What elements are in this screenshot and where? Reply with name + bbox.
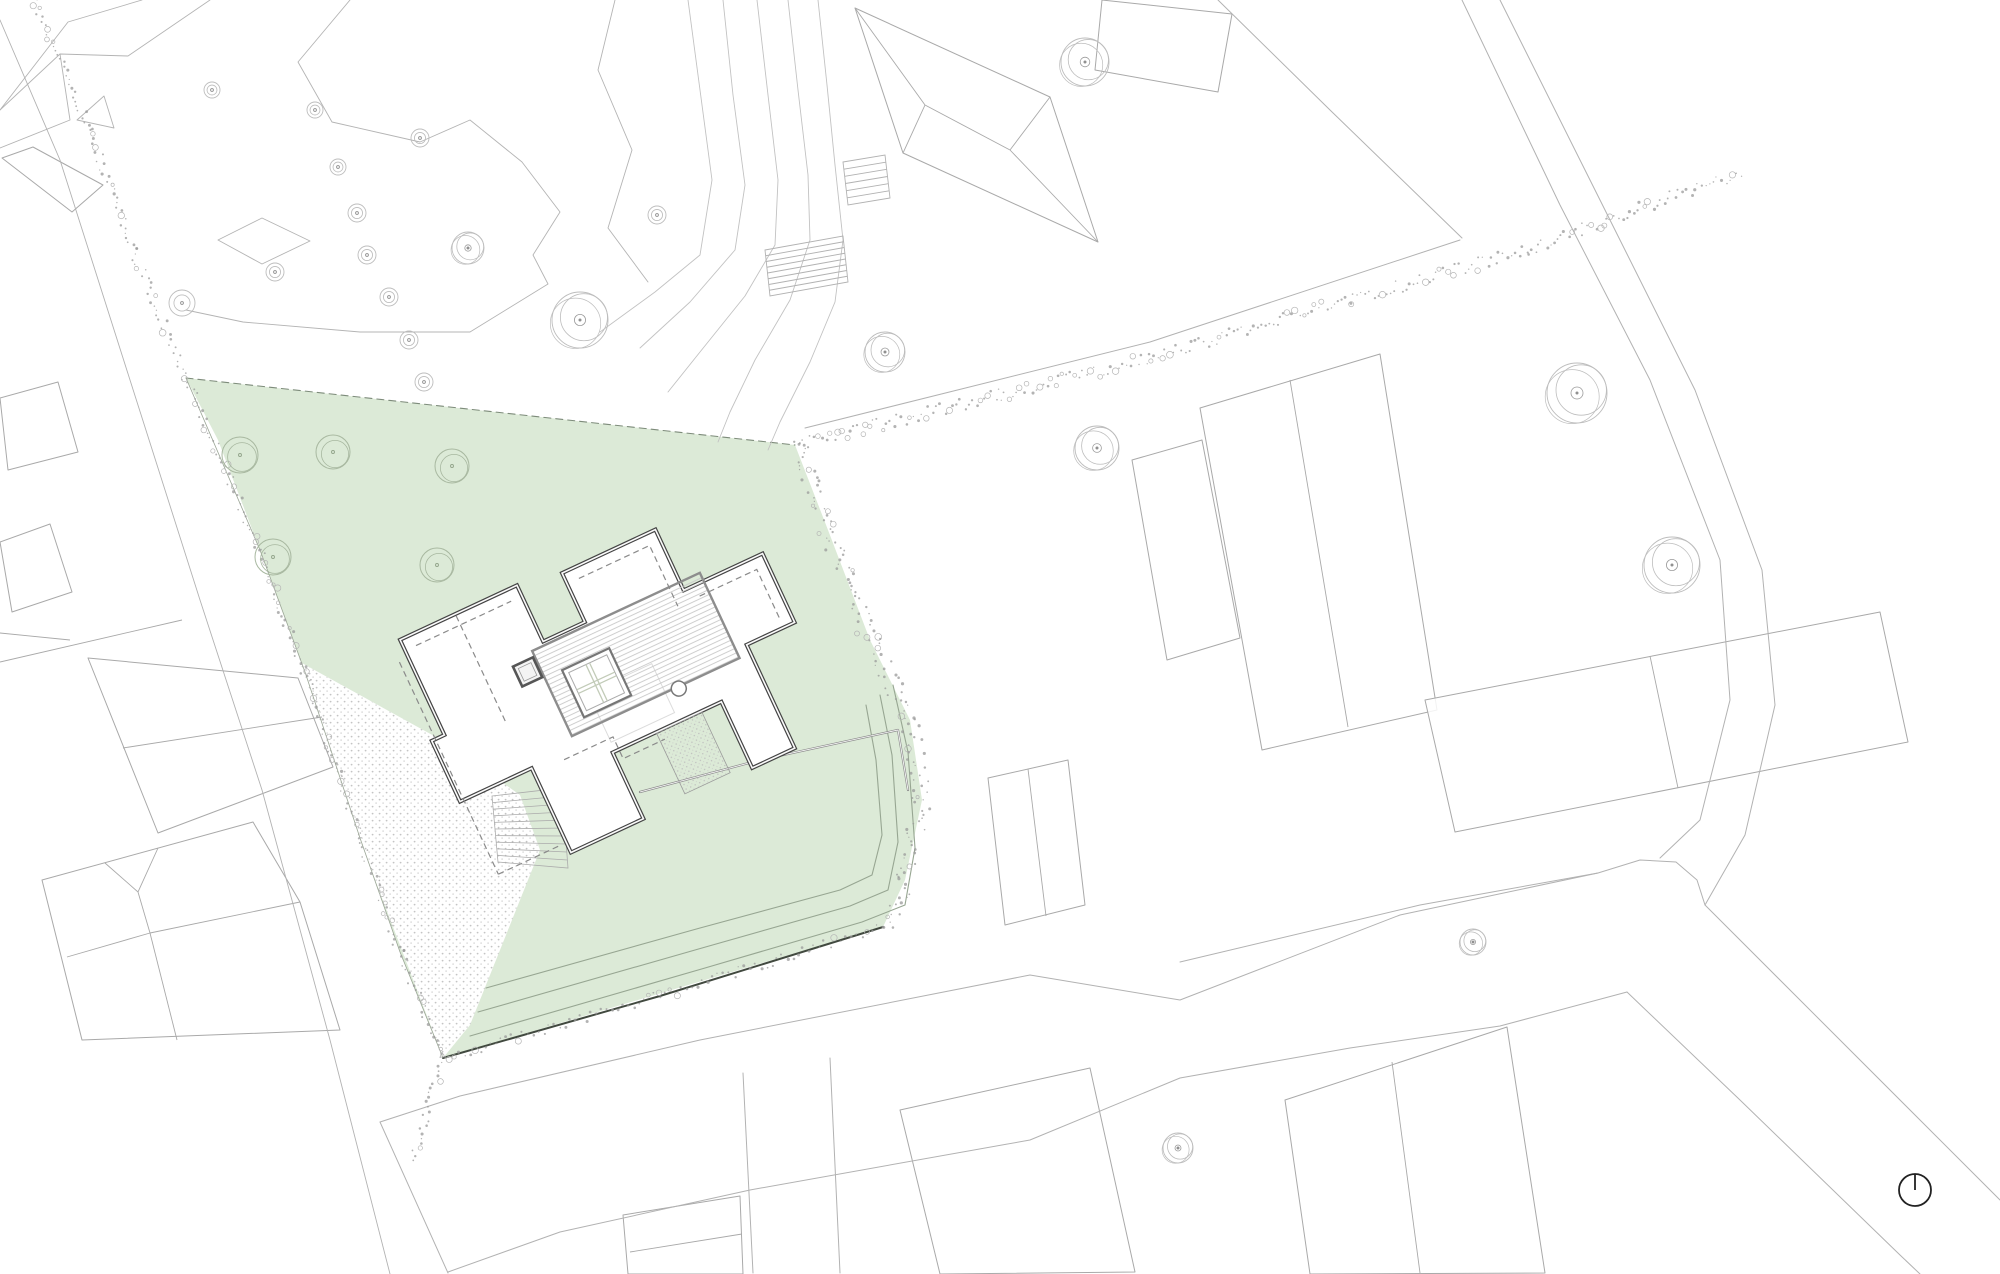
tree-icon	[169, 290, 195, 316]
tree-icon	[648, 206, 666, 224]
garden-stairs-lower	[765, 236, 848, 296]
north-arrow-icon	[1899, 1174, 1931, 1206]
garden-stairs-upper	[843, 155, 890, 205]
trees-small-gray	[169, 82, 666, 391]
tree-icon	[358, 246, 376, 264]
site-plan	[0, 0, 2000, 1274]
tree-icon	[864, 332, 905, 372]
tree-icon	[411, 129, 429, 147]
tree-icon	[451, 232, 484, 264]
existing-house-north	[855, 0, 1232, 242]
tree-icon	[400, 331, 418, 349]
tree-icon	[266, 263, 284, 281]
contour-lines	[600, 0, 843, 450]
tree-icon	[380, 288, 398, 306]
vegetation-outlines	[0, 0, 648, 332]
tree-icon	[348, 204, 366, 222]
tree-icon	[330, 159, 346, 175]
tree-icon	[550, 292, 608, 349]
tree-icon	[1162, 1133, 1193, 1163]
site-plan-svg	[0, 0, 2000, 1274]
tree-icon	[1074, 426, 1119, 470]
tree-icon	[1642, 537, 1700, 594]
tree-icon	[204, 82, 220, 98]
tree-icon	[307, 102, 323, 118]
tree-icon	[1459, 929, 1486, 955]
tree-icon	[1545, 363, 1607, 424]
plan-layers	[0, 0, 2000, 1274]
tree-icon	[415, 373, 433, 391]
